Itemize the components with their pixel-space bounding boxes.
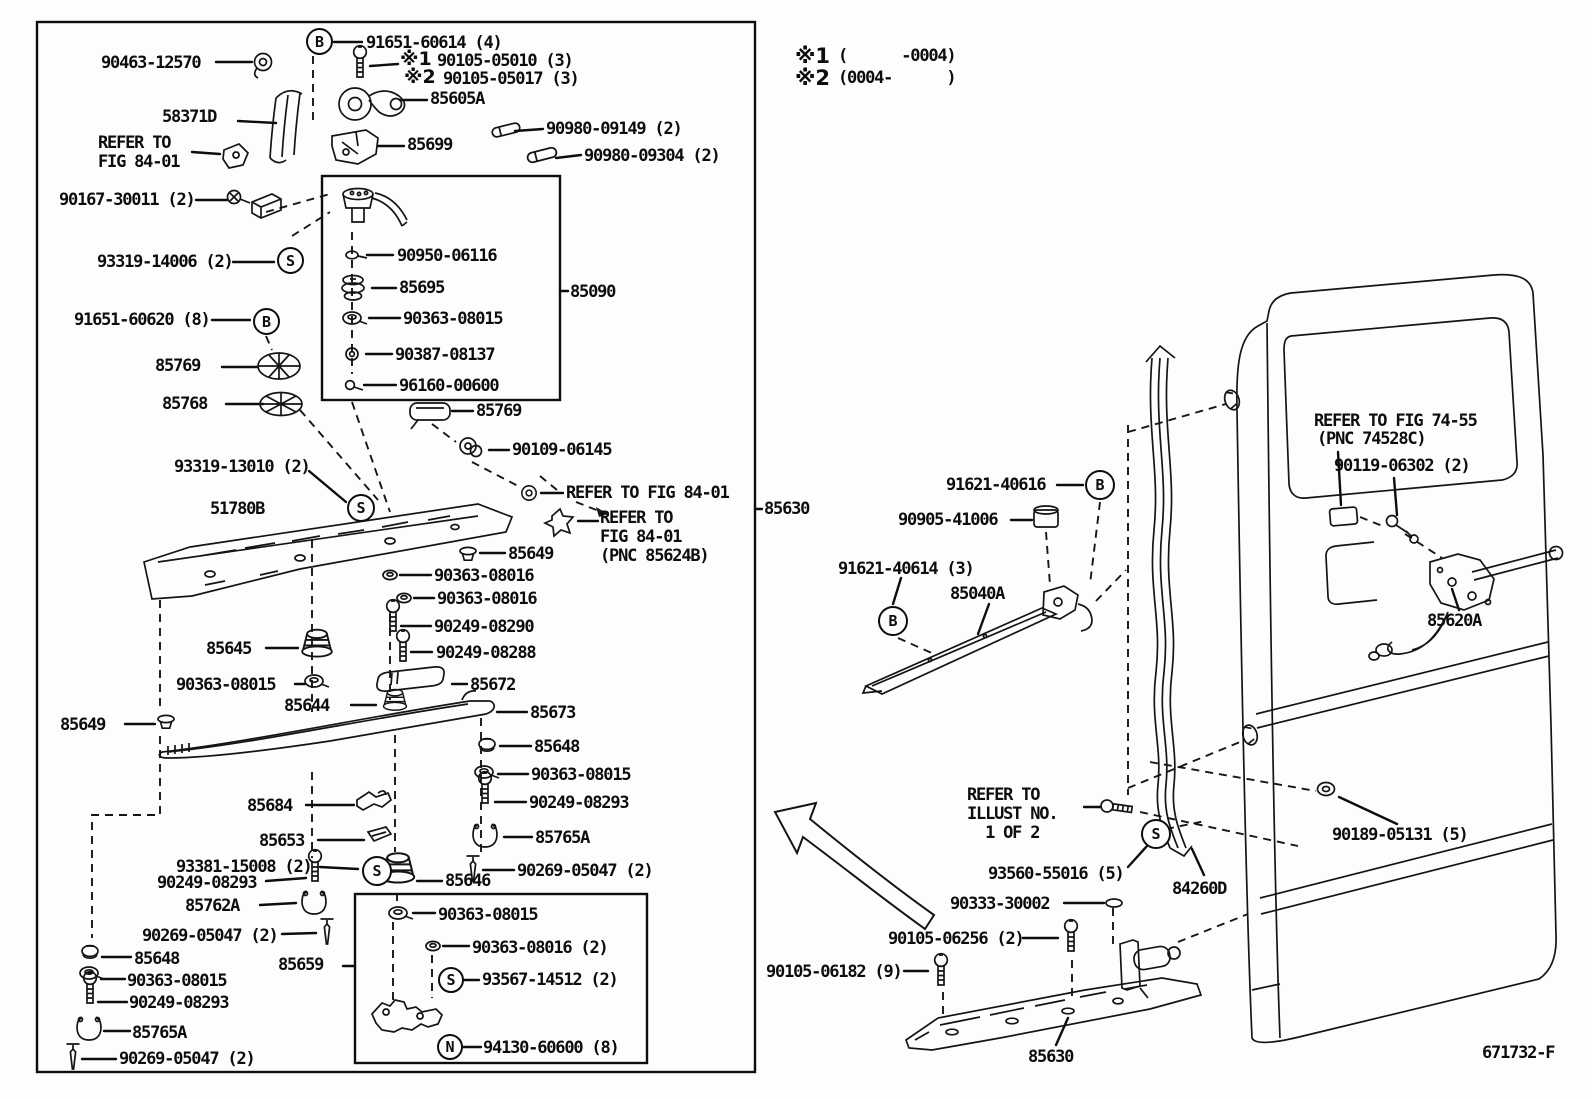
spray-head-icon — [343, 189, 407, 227]
callout-90269-05047-3: 90269-05047 (2) — [119, 1050, 255, 1069]
shared-fastener-s-mark: S — [362, 856, 392, 886]
callout-85769-2: 85769 — [476, 402, 521, 421]
nut-icon — [397, 593, 411, 602]
callout-85649: 85649 — [508, 545, 553, 564]
grommet-icon — [255, 54, 272, 79]
grommet-icon — [522, 486, 536, 500]
shared-fastener-b-mark: B — [878, 606, 908, 636]
refer-fig-84-01-note: REFER TO FIG 84-01 — [98, 134, 179, 172]
callout-90249-08293: 90249-08293 — [529, 794, 628, 813]
callout-94130-60600: 94130-60600 (8) — [483, 1039, 619, 1058]
refer-illust-note: REFER TO ILLUST NO. 1 OF 2 — [967, 786, 1057, 843]
nut-icon — [389, 907, 413, 919]
nut-icon — [426, 941, 440, 950]
callout-90905-41006: 90905-41006 — [898, 511, 997, 530]
wheel-icon — [260, 393, 302, 416]
callout-91621-40614: 91621-40614 (3) — [838, 560, 974, 579]
callout-93560-55016: 93560-55016 (5) — [988, 865, 1124, 884]
callout-93567-14512: 93567-14512 (2) — [482, 971, 618, 990]
shared-fastener-s-mark: S — [1141, 819, 1171, 849]
cushion-icon — [384, 689, 407, 710]
grommet-oval-icon — [1106, 899, 1122, 907]
callout-90363-08015-5: 90363-08015 — [438, 906, 537, 925]
cushion-icon — [302, 630, 332, 657]
bolt-icon — [354, 46, 367, 77]
callout-90333-30002: 90333-30002 — [950, 895, 1049, 914]
pin-icon — [527, 147, 558, 163]
callout-58371d: 58371D — [162, 108, 216, 127]
callout-90249-08290: 90249-08290 — [434, 618, 533, 637]
callout-85769: 85769 — [155, 357, 200, 376]
callout-90387-08137: 90387-08137 — [395, 346, 494, 365]
ref-mark-2: ※2 — [404, 66, 436, 88]
callout-90363-08015-4: 90363-08015 — [127, 972, 226, 991]
callout-90950-06116: 90950-06116 — [397, 247, 496, 266]
legend-range-2: (0004- ) — [838, 69, 955, 88]
bracket-icon — [332, 130, 378, 164]
callout-85653: 85653 — [259, 832, 304, 851]
callout-85695: 85695 — [399, 279, 444, 298]
lower-panel-85630-drawing — [906, 940, 1201, 1050]
lock-base-icon — [372, 1000, 442, 1032]
callout-85648-2: 85648 — [134, 950, 179, 969]
tiny-screw-icon — [346, 381, 363, 390]
screw-icon — [67, 1044, 80, 1069]
regulator-85620a-drawing — [1369, 547, 1563, 661]
screw-icon — [321, 919, 334, 944]
shared-fastener-s-mark: S — [438, 967, 464, 993]
callout-84260d: 84260D — [1172, 880, 1226, 899]
callout-90189-05131: 90189-05131 (5) — [1332, 826, 1468, 845]
callout-90269-05047-2: 90269-05047 (2) — [142, 927, 278, 946]
callout-90269-05047: 90269-05047 (2) — [517, 862, 653, 881]
callout-90363-08015-2: 90363-08015 — [176, 676, 275, 695]
callout-90119-06302: 90119-06302 (2) — [1334, 457, 1470, 476]
bolt-icon — [1100, 799, 1132, 815]
fan-gear-icon — [258, 353, 300, 379]
assembly-drawings — [144, 275, 1563, 1050]
clip-icon — [1318, 783, 1335, 796]
callout-96160-00600: 96160-00600 — [399, 377, 498, 396]
screw-block-icon — [228, 191, 282, 219]
callout-51780b: 51780B — [210, 500, 264, 519]
refer-fig-84-01-note-2: REFER TO FIG 84-01 — [566, 484, 729, 503]
stopper-bar-icon — [377, 667, 444, 691]
callout-93319-14006: 93319-14006 (2) — [97, 253, 233, 272]
bolt-icon — [387, 600, 400, 631]
u-clip-icon — [473, 824, 497, 847]
refer-pnc-74528c-note: (PNC 74528C) — [1317, 430, 1425, 449]
glass-run-84260d-drawing — [1146, 346, 1192, 856]
pin-small-icon — [346, 251, 367, 259]
figure-code: 671732-F — [1482, 1044, 1554, 1063]
callout-85644: 85644 — [284, 697, 329, 716]
callout-90980-09304: 90980-09304 (2) — [584, 147, 720, 166]
callout-85673: 85673 — [530, 704, 575, 723]
rivet-icon — [158, 715, 174, 728]
callout-85672: 85672 — [470, 676, 515, 695]
door-clip-icon — [1222, 388, 1241, 411]
plug-icon — [82, 946, 98, 959]
callout-85684: 85684 — [247, 797, 292, 816]
callout-90105-05017: 90105-05017 (3) — [443, 70, 579, 89]
callout-85646: 85646 — [445, 872, 490, 891]
rivet-icon — [460, 547, 476, 560]
callout-85699: 85699 — [407, 136, 452, 155]
nut-icon — [305, 675, 329, 687]
double-ring-icon — [460, 438, 482, 457]
switch-icon — [1387, 516, 1419, 544]
callout-90105-06182: 90105-06182 (9) — [766, 963, 902, 982]
callout-90463-12570: 90463-12570 — [101, 54, 200, 73]
callout-85765a-2: 85765A — [132, 1024, 186, 1043]
tray-icon — [410, 403, 450, 429]
motor-icon — [339, 88, 405, 120]
parts-diagram-canvas: B S B S S S N B B S ※1 ( -0004) ※2 (0004… — [0, 0, 1592, 1099]
bolt-icon — [84, 972, 97, 1003]
callout-90980-09149: 90980-09149 (2) — [546, 120, 682, 139]
callout-85630-plate: 85630 — [1028, 1048, 1073, 1067]
legend-ref-mark-2: ※2 — [795, 66, 830, 90]
bolt-icon — [1065, 920, 1078, 951]
shared-fastener-b-mark: B — [253, 308, 280, 335]
callout-85762a: 85762A — [185, 897, 239, 916]
legend-ref-mark-1: ※1 — [795, 44, 830, 68]
shared-fastener-b-mark: B — [1085, 470, 1115, 500]
callout-85090: 85090 — [570, 283, 615, 302]
callout-85659: 85659 — [278, 956, 323, 975]
plug-icon — [479, 739, 495, 752]
shared-fastener-s-mark: S — [277, 247, 304, 274]
callout-90105-06256: 90105-06256 (2) — [888, 930, 1024, 949]
callout-85605a: 85605A — [430, 90, 484, 109]
shared-fastener-n-mark: N — [437, 1034, 463, 1060]
sliding-door-drawing — [1237, 275, 1556, 1043]
nut-icon — [343, 312, 367, 324]
refer-fig-84-01-pnc-note: REFER TO FIG 84-01 (PNC 85624B) — [600, 509, 708, 566]
callout-90363-08016-2: 90363-08016 — [437, 590, 536, 609]
callout-90363-08016: 90363-08016 — [434, 567, 533, 586]
lever-icon — [357, 791, 391, 810]
callout-90249-08288: 90249-08288 — [436, 644, 535, 663]
bolt-icon — [397, 630, 410, 661]
callout-90249-08293-2: 90249-08293 — [157, 874, 256, 893]
cylinder-icon — [1034, 506, 1058, 527]
callout-85630-assembly: 85630 — [764, 500, 809, 519]
u-clip-icon — [302, 891, 326, 914]
bolt-icon — [935, 954, 948, 985]
callout-85649-2: 85649 — [60, 716, 105, 735]
leader-lines — [82, 42, 1459, 1059]
clip-star-icon — [545, 509, 573, 536]
shared-fastener-b-mark: B — [306, 28, 333, 55]
shared-fastener-s-mark: S — [347, 494, 375, 522]
callout-91621-40616: 91621-40616 — [946, 476, 1045, 495]
sticker-icon — [1329, 507, 1357, 526]
callout-90249-08293-3: 90249-08293 — [129, 994, 228, 1013]
run-channel-icon — [270, 91, 302, 163]
hinge-icon — [223, 144, 248, 168]
callout-90109-06145: 90109-06145 — [512, 441, 611, 460]
nut-icon — [383, 570, 397, 579]
callout-90363-08015: 90363-08015 — [403, 310, 502, 329]
grommet-stack-icon — [342, 276, 364, 301]
u-clip-icon — [77, 1017, 101, 1040]
clip-icon — [368, 827, 391, 841]
callout-91651-60620: 91651-60620 (8) — [74, 311, 210, 330]
callout-85768: 85768 — [162, 395, 207, 414]
callout-85648: 85648 — [534, 738, 579, 757]
callout-90363-08016-q2: 90363-08016 (2) — [472, 939, 608, 958]
legend-range-1: ( -0004) — [838, 47, 955, 66]
callout-85765a: 85765A — [535, 829, 589, 848]
direction-arrow — [775, 803, 934, 929]
callout-90363-08015-3: 90363-08015 — [531, 766, 630, 785]
callout-85645: 85645 — [206, 640, 251, 659]
callout-85620a: 85620A — [1427, 612, 1481, 631]
callout-93319-13010: 93319-13010 (2) — [174, 458, 310, 477]
part-icons — [67, 46, 1419, 1069]
callout-85040a: 85040A — [950, 585, 1004, 604]
callout-90167-30011: 90167-30011 (2) — [59, 191, 195, 210]
